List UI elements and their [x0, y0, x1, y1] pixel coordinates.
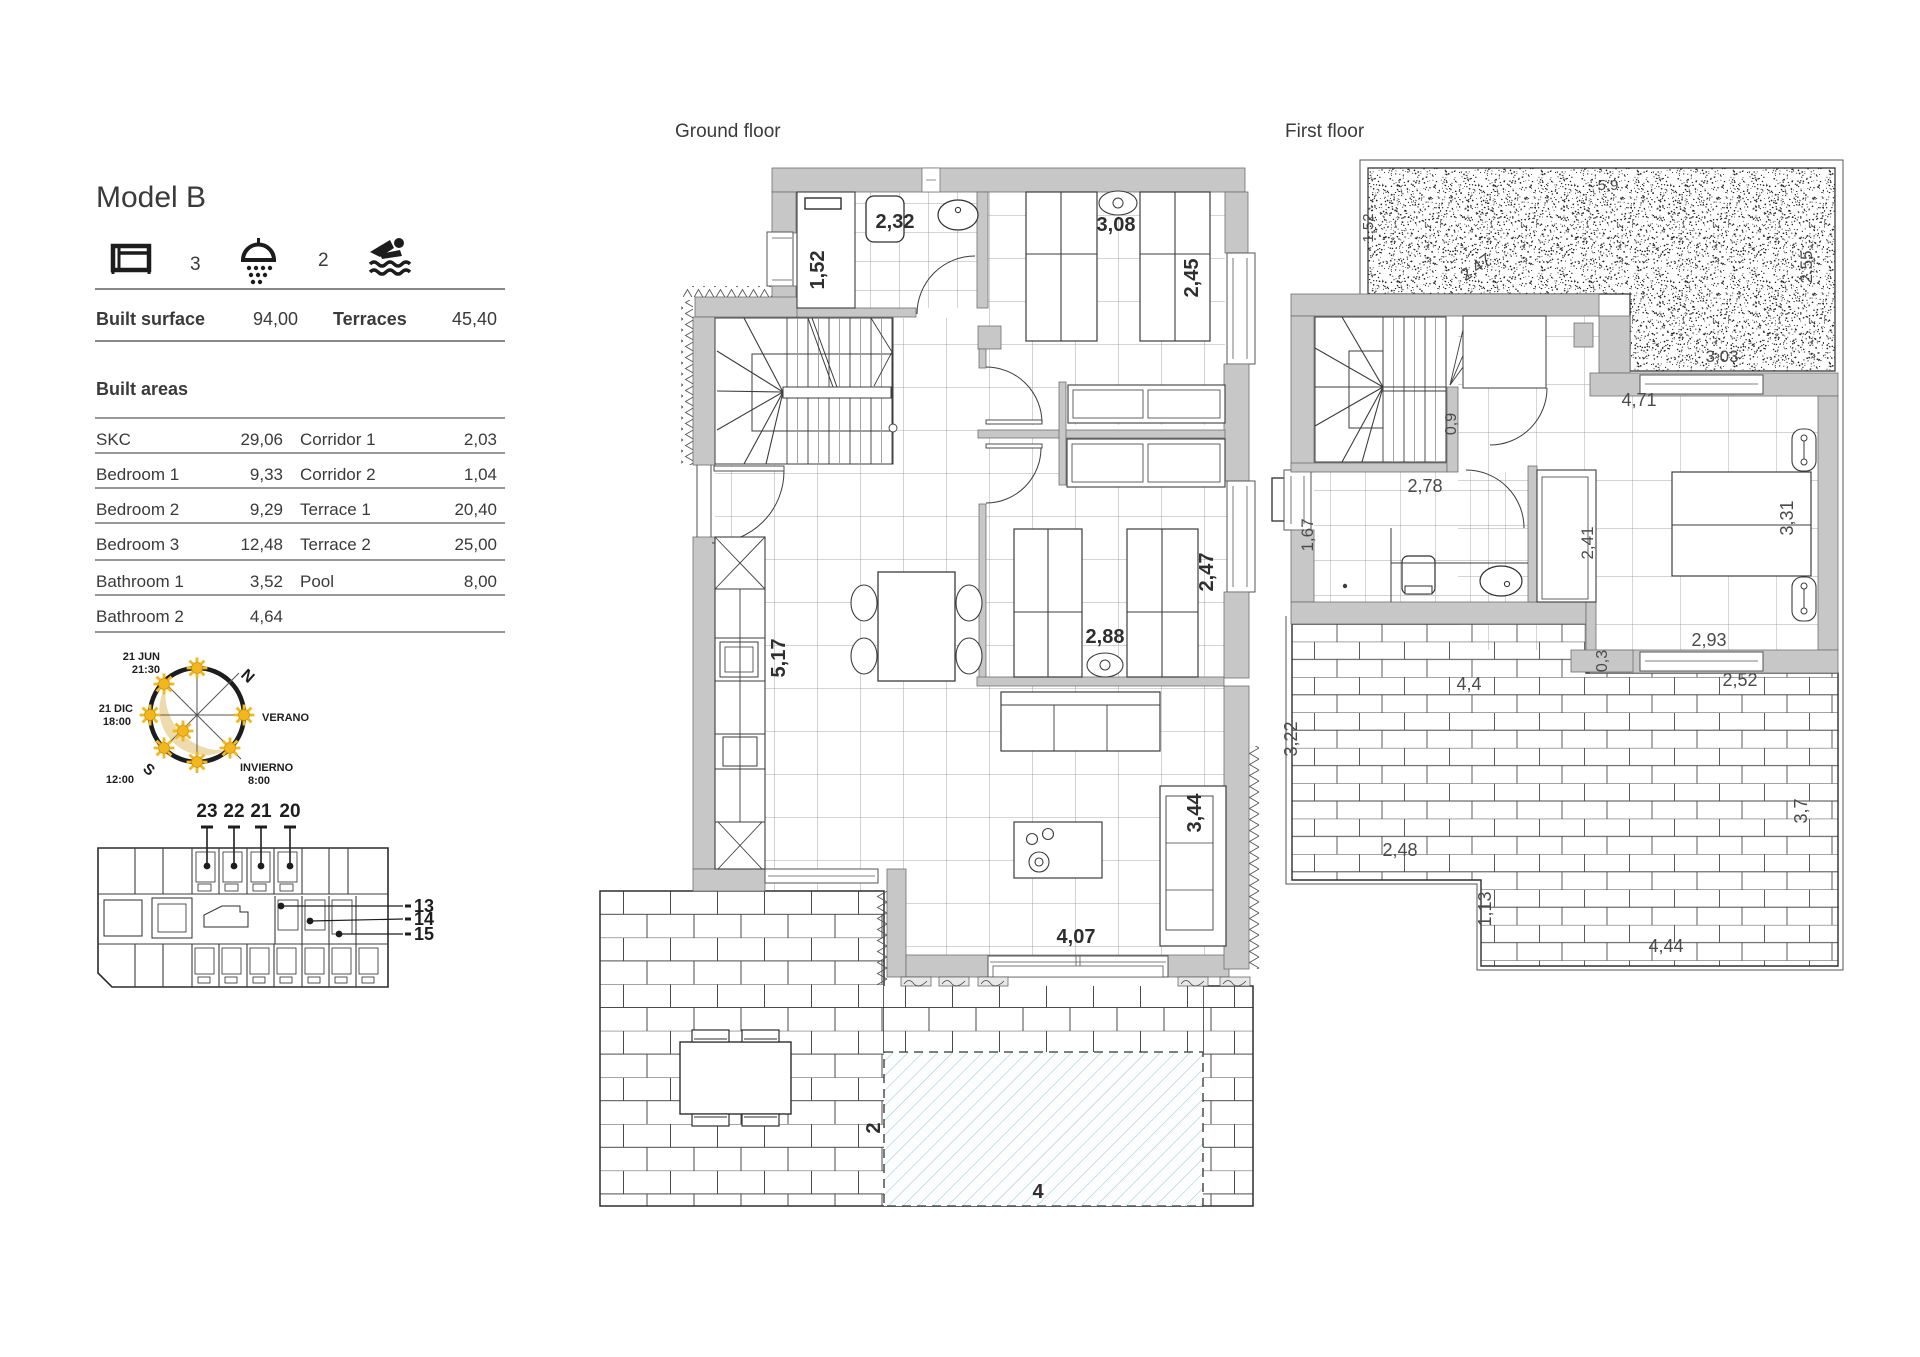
svg-text:18:00: 18:00	[103, 716, 131, 728]
svg-text:5,17: 5,17	[768, 639, 790, 678]
svg-text:SKC: SKC	[96, 430, 131, 449]
svg-text:2,41: 2,41	[1578, 526, 1597, 559]
svg-text:1,13: 1,13	[1475, 891, 1495, 926]
svg-text:3: 3	[190, 254, 201, 275]
svg-text:Model B: Model B	[96, 181, 206, 214]
svg-text:2,88: 2,88	[1086, 626, 1125, 648]
svg-text:4: 4	[1032, 1181, 1044, 1203]
svg-text:3,52: 3,52	[250, 572, 283, 591]
svg-text:4,71: 4,71	[1621, 390, 1656, 410]
svg-text:20,40: 20,40	[454, 500, 497, 519]
svg-text:4,4: 4,4	[1456, 674, 1481, 694]
svg-text:1,52: 1,52	[807, 251, 829, 290]
svg-text:Pool: Pool	[300, 572, 334, 591]
svg-text:Built areas: Built areas	[96, 379, 188, 399]
svg-text:Terrace 1: Terrace 1	[300, 500, 371, 519]
svg-text:23: 23	[196, 801, 217, 822]
svg-text:2,32: 2,32	[876, 211, 915, 233]
svg-text:20: 20	[279, 801, 300, 822]
svg-text:Bedroom 3: Bedroom 3	[96, 535, 179, 554]
svg-text:8:00: 8:00	[248, 775, 270, 787]
svg-text:1,52: 1,52	[1360, 213, 1377, 242]
svg-text:2,48: 2,48	[1382, 840, 1417, 860]
svg-text:9,29: 9,29	[250, 500, 283, 519]
svg-text:21:30: 21:30	[132, 664, 160, 676]
svg-text:2,45: 2,45	[1181, 259, 1203, 298]
svg-text:2,93: 2,93	[1691, 630, 1726, 650]
svg-text:45,40: 45,40	[452, 309, 497, 329]
svg-text:8,00: 8,00	[464, 572, 497, 591]
svg-text:3,31: 3,31	[1777, 500, 1797, 535]
svg-text:5,9: 5,9	[1598, 177, 1619, 194]
svg-text:12,48: 12,48	[240, 535, 283, 554]
svg-text:0,9: 0,9	[1443, 413, 1460, 435]
svg-text:21: 21	[250, 801, 272, 822]
svg-text:3,7: 3,7	[1791, 798, 1811, 823]
svg-text:Terrace 2: Terrace 2	[300, 535, 371, 554]
svg-text:Bedroom 1: Bedroom 1	[96, 465, 179, 484]
svg-text:12:00: 12:00	[106, 774, 134, 786]
svg-text:2,55: 2,55	[1797, 250, 1816, 283]
svg-text:4,44: 4,44	[1648, 936, 1683, 956]
svg-text:9,33: 9,33	[250, 465, 283, 484]
svg-text:First floor: First floor	[1285, 121, 1365, 142]
svg-text:1,04: 1,04	[464, 465, 497, 484]
svg-text:3,08: 3,08	[1097, 214, 1136, 236]
svg-text:Bedroom 2: Bedroom 2	[96, 500, 179, 519]
svg-text:Corridor 1: Corridor 1	[300, 430, 376, 449]
svg-text:0,3: 0,3	[1594, 650, 1611, 672]
svg-text:4,07: 4,07	[1057, 926, 1096, 948]
svg-text:21 JUN: 21 JUN	[123, 651, 160, 663]
svg-text:3,22: 3,22	[1281, 721, 1301, 756]
svg-text:2,78: 2,78	[1407, 476, 1442, 496]
svg-text:21 DIC: 21 DIC	[99, 703, 133, 715]
svg-text:94,00: 94,00	[253, 309, 298, 329]
svg-text:4,64: 4,64	[250, 607, 283, 626]
svg-text:2: 2	[863, 1122, 885, 1133]
svg-text:INVIERNO: INVIERNO	[240, 762, 294, 774]
svg-text:Bathroom 2: Bathroom 2	[96, 607, 184, 626]
svg-text:3,44: 3,44	[1184, 793, 1206, 833]
svg-text:25,00: 25,00	[454, 535, 497, 554]
svg-text:29,06: 29,06	[240, 430, 283, 449]
svg-text:Corridor 2: Corridor 2	[300, 465, 376, 484]
svg-text:Bathroom 1: Bathroom 1	[96, 572, 184, 591]
svg-text:2: 2	[318, 250, 329, 271]
svg-text:15: 15	[414, 924, 434, 944]
svg-text:VERANO: VERANO	[262, 712, 310, 724]
svg-text:1,67: 1,67	[1298, 518, 1317, 551]
svg-text:2,03: 2,03	[464, 430, 497, 449]
svg-text:Ground floor: Ground floor	[675, 121, 781, 142]
svg-text:Terraces: Terraces	[333, 309, 407, 329]
svg-text:22: 22	[223, 801, 244, 822]
svg-text:3,03: 3,03	[1705, 347, 1738, 366]
svg-text:2,47: 2,47	[1196, 553, 1218, 592]
svg-text:Built surface: Built surface	[96, 309, 205, 329]
